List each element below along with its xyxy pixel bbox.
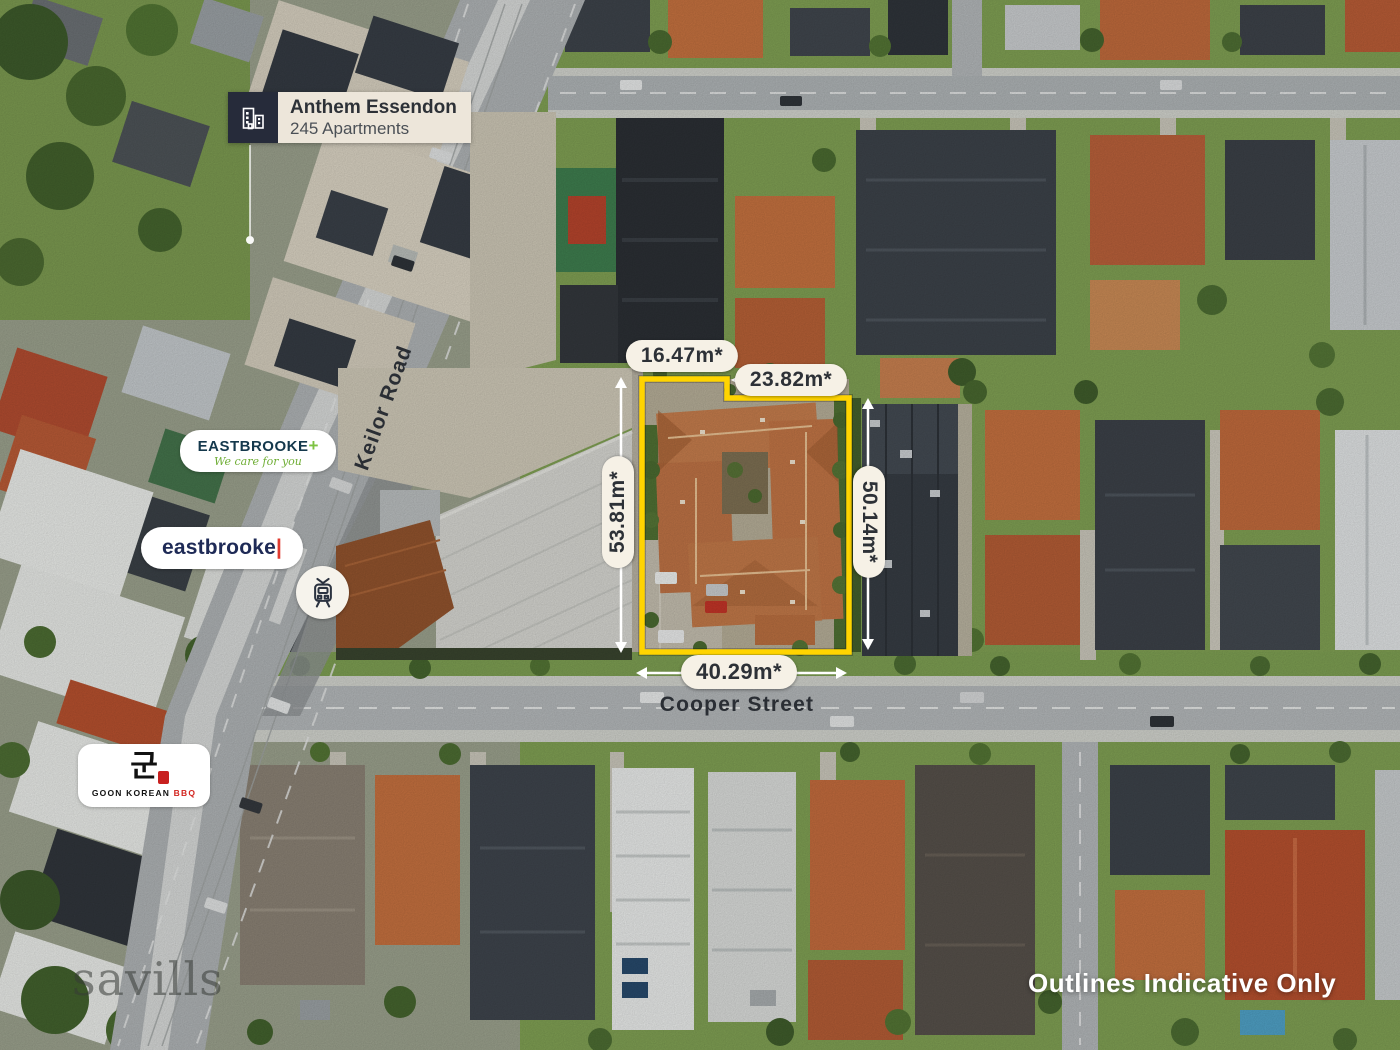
dimension-pill-right: 50.14m*	[853, 466, 885, 578]
anthem-label: Anthem Essendon 245 Apartments	[228, 92, 471, 143]
photo-grain	[0, 0, 1400, 1050]
eastbrooke-name: eastbrooke	[162, 536, 276, 559]
goon-name: GOON KOREAN	[92, 788, 170, 798]
goon-korean-bbq-label: 군 GOON KOREAN BBQ	[78, 744, 210, 807]
anthem-title: Anthem Essendon	[290, 97, 457, 119]
eastbrooke-medical-name: EASTBROOKE	[198, 438, 309, 455]
goon-seal-icon	[158, 771, 169, 784]
eastbrooke-medical-label: EASTBROOKE+ We care for you	[180, 430, 336, 472]
eastbrooke-label: eastbrooke|	[141, 527, 303, 569]
anthem-subtitle: 245 Apartments	[290, 119, 457, 139]
dimension-pill-left: 53.81m*	[602, 456, 634, 568]
tram-stop-marker	[296, 566, 349, 619]
dimension-pill-bottom: 40.29m*	[681, 655, 797, 689]
aerial-property-marketing-image: Anthem Essendon 245 Apartments EASTBROOK…	[0, 0, 1400, 1050]
dimension-pill-top-left: 16.47m*	[626, 340, 738, 372]
outlines-disclaimer: Outlines Indicative Only	[1028, 968, 1336, 999]
dimension-pill-top-right: 23.82m*	[735, 364, 847, 396]
aerial-photo	[0, 0, 1400, 1050]
tram-icon	[306, 575, 340, 611]
eastbrooke-red-bar: |	[276, 536, 282, 559]
savills-watermark: savills	[72, 952, 224, 1006]
goon-bbq: BBQ	[174, 788, 196, 798]
goon-hangul-glyph: 군	[130, 750, 158, 783]
plus-icon: +	[308, 436, 318, 455]
building-icon	[228, 92, 278, 143]
eastbrooke-medical-tagline: We care for you	[188, 455, 328, 468]
street-label-cooper-street: Cooper Street	[660, 693, 814, 717]
